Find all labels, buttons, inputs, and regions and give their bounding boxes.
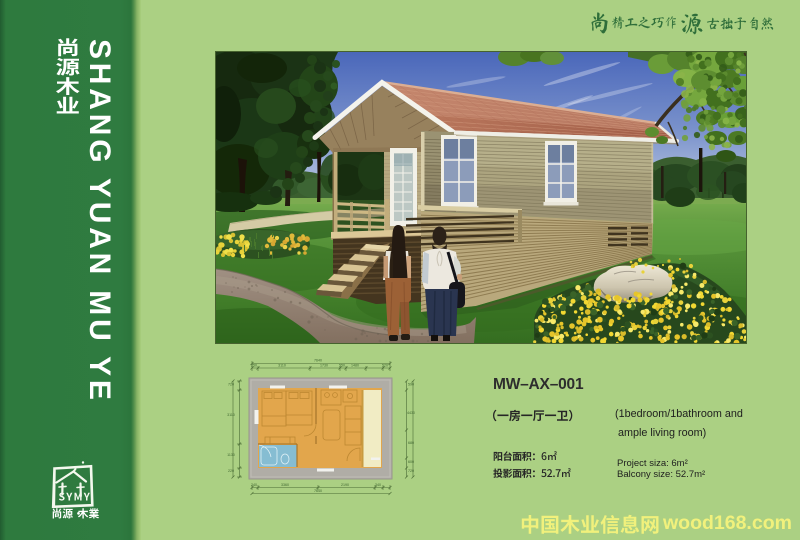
svg-text:1480: 1480 xyxy=(351,364,359,368)
svg-text:7640: 7640 xyxy=(314,359,322,363)
svg-text:240: 240 xyxy=(251,483,257,487)
svg-text:340: 340 xyxy=(375,483,381,487)
svg-text:550: 550 xyxy=(339,364,345,368)
svg-text:1730: 1730 xyxy=(320,364,328,368)
svg-text:250: 250 xyxy=(251,364,257,368)
svg-text:720: 720 xyxy=(228,383,234,387)
svg-text:3360: 3360 xyxy=(281,483,289,487)
svg-text:1130: 1130 xyxy=(227,453,235,457)
svg-text:7640: 7640 xyxy=(314,489,322,493)
svg-text:590: 590 xyxy=(408,383,414,387)
svg-text:3110: 3110 xyxy=(227,413,235,417)
svg-text:4430: 4430 xyxy=(407,411,415,415)
svg-text:3110: 3110 xyxy=(278,364,286,368)
svg-text:720: 720 xyxy=(408,469,414,473)
svg-text:520: 520 xyxy=(382,364,388,368)
svg-text:2190: 2190 xyxy=(341,483,349,487)
svg-text:600: 600 xyxy=(408,460,414,464)
svg-text:680: 680 xyxy=(408,441,414,445)
svg-text:220: 220 xyxy=(228,469,234,473)
